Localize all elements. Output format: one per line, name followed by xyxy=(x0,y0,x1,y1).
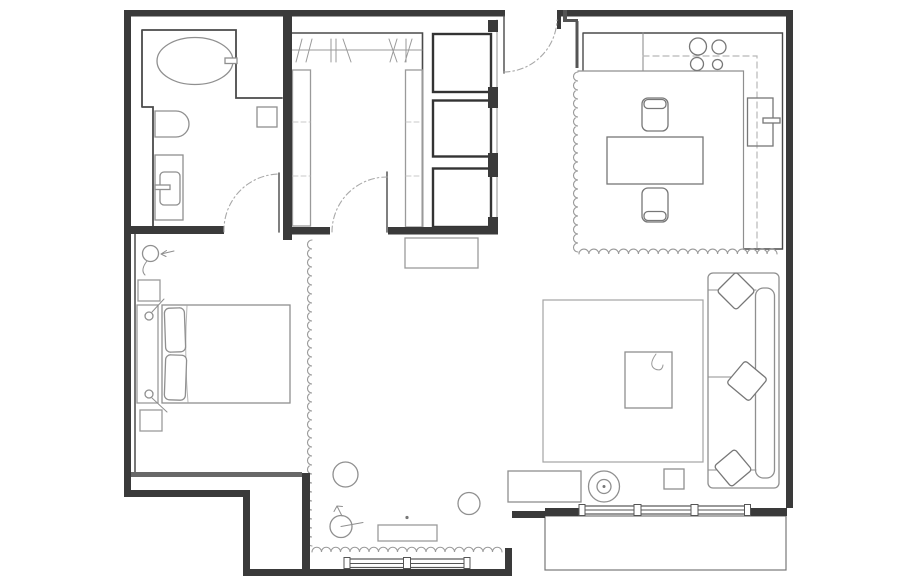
wall-notch-vertical xyxy=(243,490,250,576)
bathtub-faucet xyxy=(225,58,237,64)
bed-pillow-top xyxy=(164,308,186,353)
washing-machine xyxy=(257,107,277,127)
toilet xyxy=(155,111,189,137)
wardrobe-left-shelf-dashes xyxy=(293,122,310,176)
dining-chair-top-back xyxy=(644,100,666,109)
wardrobe-right xyxy=(406,70,423,227)
living-room-rug xyxy=(543,300,703,462)
wall-stub-storage-4 xyxy=(488,217,498,233)
hall-bench xyxy=(378,525,437,541)
wall-bedroom-bottom-inner xyxy=(131,472,302,477)
cooktop-burner-3 xyxy=(691,58,704,71)
media-box xyxy=(664,469,684,489)
hall-window-jamb-right xyxy=(464,558,470,569)
balcony-outline xyxy=(545,516,786,570)
wardrobe-left xyxy=(293,70,311,226)
pouf-large xyxy=(333,462,358,487)
dining-chair-bottom-back xyxy=(644,212,666,221)
dining-chair-bottom xyxy=(642,188,668,222)
speaker-dot xyxy=(603,485,606,488)
cooktop-burner-2 xyxy=(712,40,726,54)
closet-inner-walls xyxy=(292,33,423,229)
hall-window-jamb-center xyxy=(404,558,411,569)
wall-living-bottom-left xyxy=(545,508,582,516)
bedroom-lamp-cord xyxy=(143,261,147,275)
hall-rug-wavy-edge xyxy=(312,547,502,552)
bathroom-inner-walls xyxy=(142,30,282,226)
nightstand-bottom xyxy=(140,410,162,431)
bedroom-floor-lamp xyxy=(143,246,159,262)
oven-handle xyxy=(763,118,780,123)
hall-window-jamb-left xyxy=(344,558,350,569)
bedroom-lamp-arrow xyxy=(161,251,174,257)
coffee-table xyxy=(625,352,672,408)
wall-entry-jamb xyxy=(557,16,561,29)
cooktop-burner-1 xyxy=(690,38,707,55)
floorplan-page xyxy=(0,0,920,582)
wall-living-step xyxy=(512,511,545,518)
storage-cell-3 xyxy=(433,169,491,228)
closet-door-arc xyxy=(332,177,387,232)
living-window-jamb-3 xyxy=(691,505,698,516)
nightstand-top xyxy=(138,280,160,301)
cooktop-burner-4 xyxy=(713,60,723,70)
floorplan-svg xyxy=(0,0,920,582)
wall-right xyxy=(786,10,793,508)
wall-top-right xyxy=(557,10,793,17)
sink-faucet xyxy=(155,185,170,190)
wall-closet-bottom-left xyxy=(283,227,330,235)
wall-stub-storage-1 xyxy=(488,20,498,32)
wardrobe-right-shelf-dashes xyxy=(406,122,422,176)
wall-hall-bottom xyxy=(243,569,512,576)
wall-top-left xyxy=(131,10,505,17)
storage-cell-1 xyxy=(433,34,491,92)
tv-sideboard xyxy=(508,471,581,502)
wall-left xyxy=(124,10,131,497)
pouf-small xyxy=(458,493,480,515)
kitchen-inner-walls xyxy=(583,33,783,249)
living-window-jamb-1 xyxy=(579,505,585,516)
living-window-jamb-2 xyxy=(634,505,641,516)
wall-kitchen-stub-c xyxy=(576,21,579,68)
wall-bathroom-bottom xyxy=(131,226,224,234)
bed-pillow-bottom xyxy=(164,355,187,401)
entry-door-arc xyxy=(504,20,557,72)
bathtub xyxy=(157,38,233,85)
kitchen-upper-cabinets-dashed xyxy=(643,56,757,248)
hall-cabinet xyxy=(405,238,478,268)
wall-hall-step xyxy=(505,548,512,576)
dining-chair-top xyxy=(642,98,668,131)
wall-closet-left xyxy=(283,16,292,240)
hall-floor-dot xyxy=(405,516,408,519)
kitchen-rug-wavy-bottom xyxy=(579,249,777,254)
wall-stub-storage-2 xyxy=(488,87,498,108)
living-window-jamb-4 xyxy=(745,505,751,516)
wall-closet-bottom-right xyxy=(388,227,498,235)
storage-cell-2 xyxy=(433,101,491,157)
wall-bedroom-right xyxy=(302,473,310,576)
dining-table xyxy=(607,137,703,184)
wall-living-bottom-right xyxy=(750,508,787,516)
kitchen-rug-wavy-left xyxy=(574,72,579,252)
wall-stub-storage-3 xyxy=(488,153,498,177)
bathroom-door-arc xyxy=(224,174,279,232)
wall-bottom-left xyxy=(124,490,250,497)
